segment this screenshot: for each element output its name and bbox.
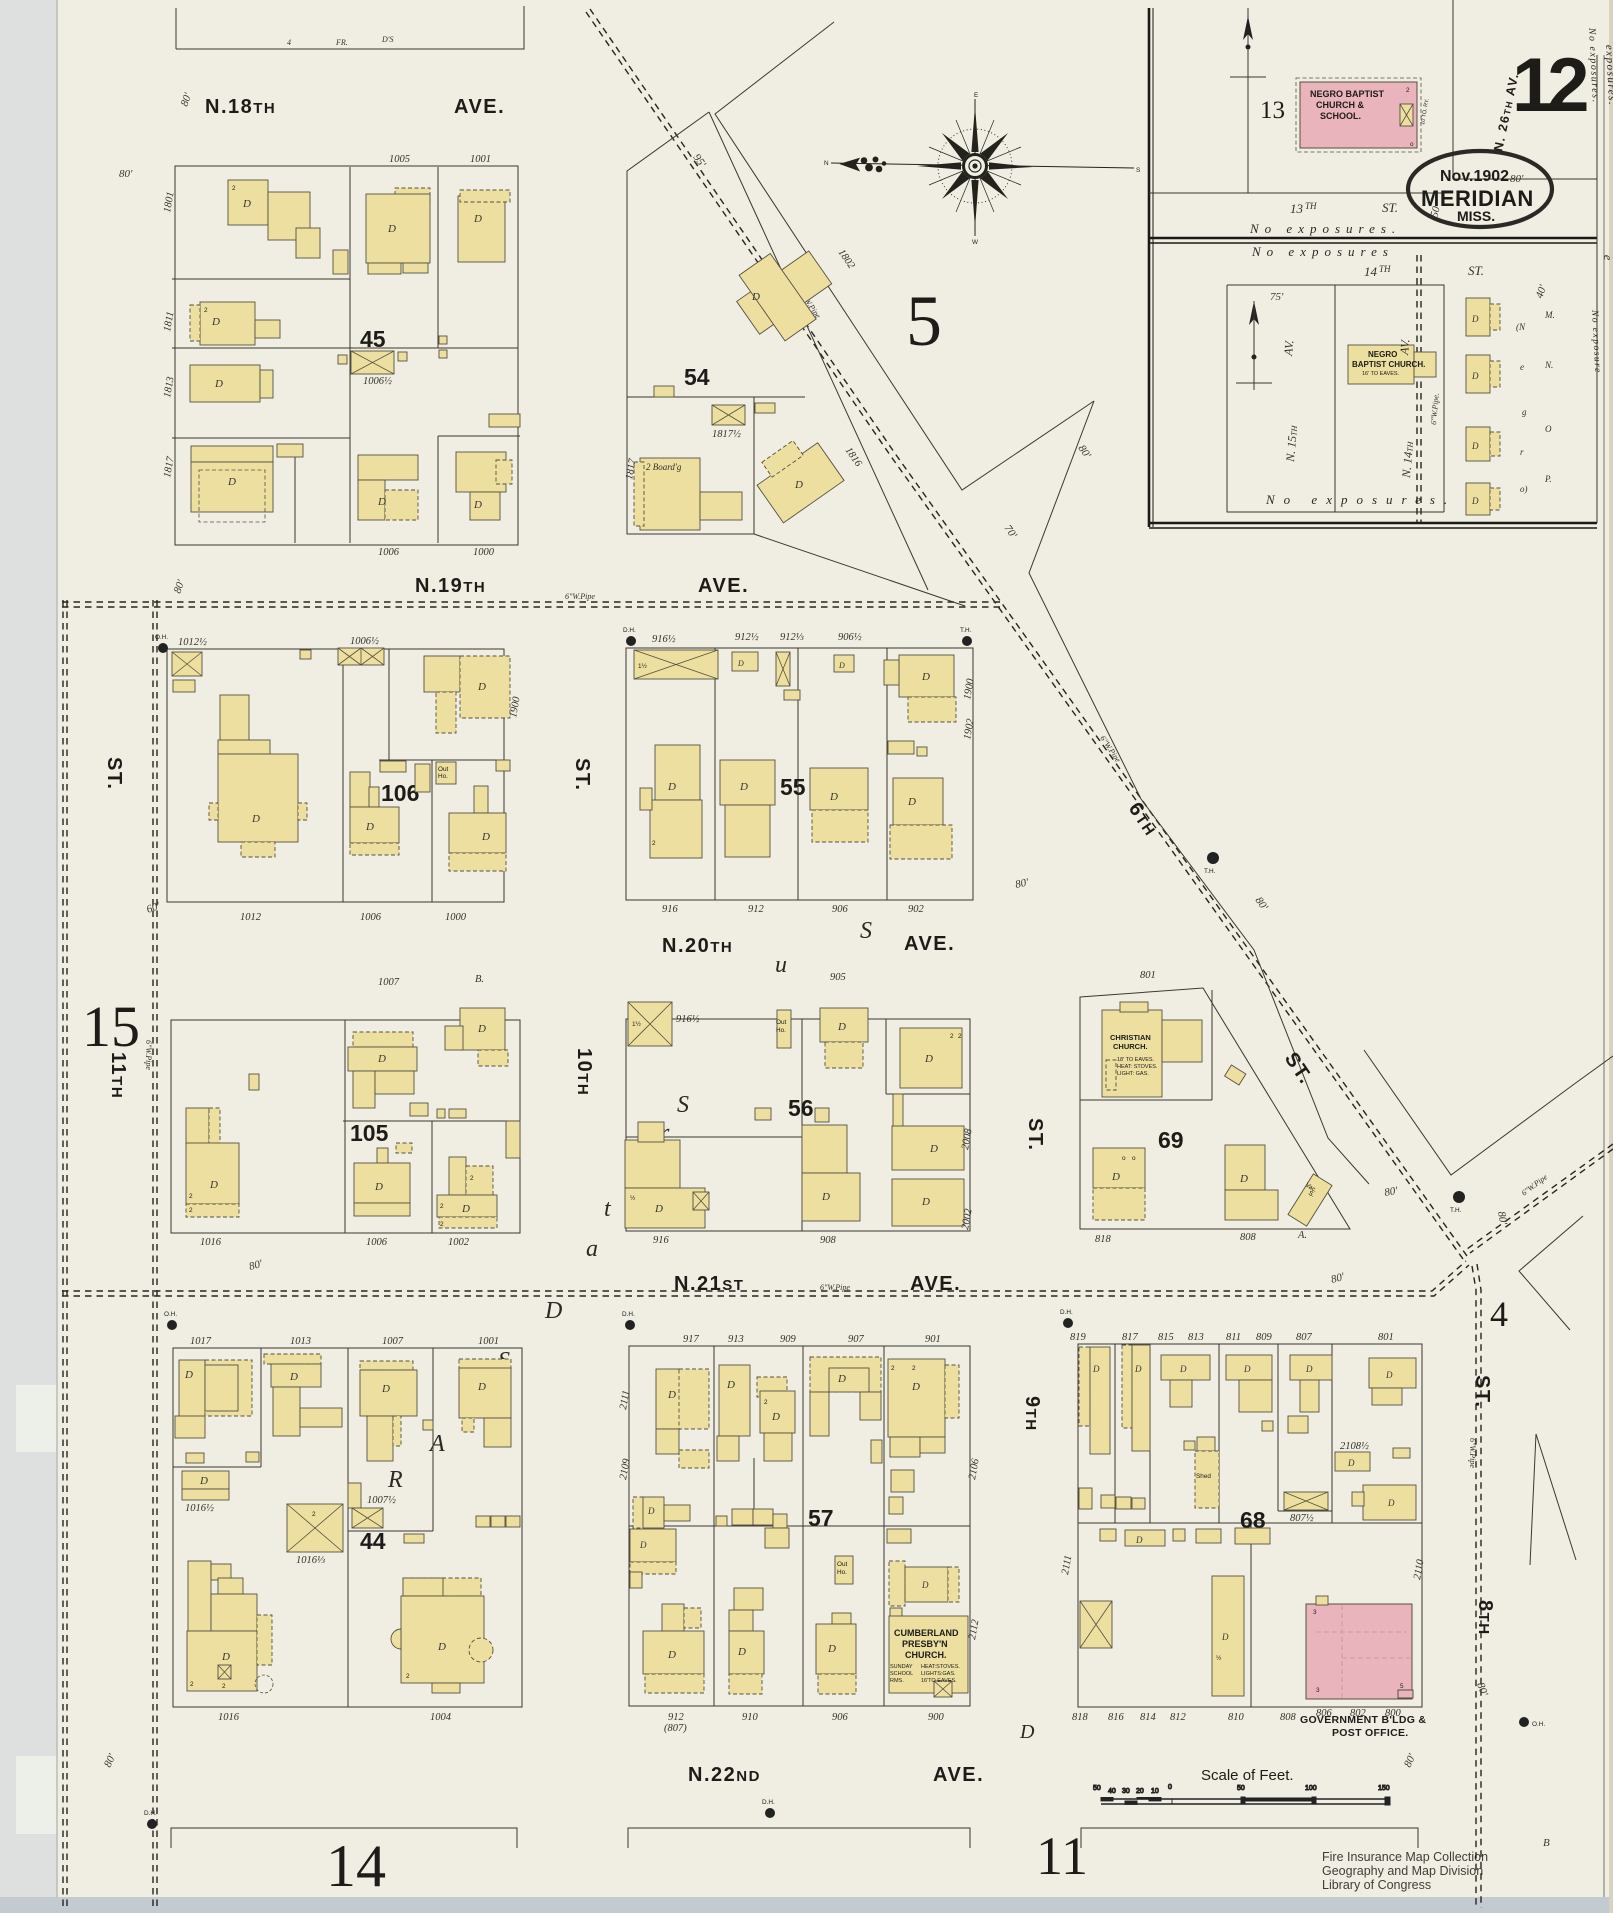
svg-text:BAPTIST CHURCH.: BAPTIST CHURCH. — [1352, 360, 1425, 369]
svg-text:1007: 1007 — [382, 1336, 404, 1347]
svg-text:POST OFFICE.: POST OFFICE. — [1332, 1727, 1409, 1739]
svg-text:D: D — [737, 659, 744, 668]
svg-text:105: 105 — [350, 1120, 389, 1146]
svg-text:D: D — [387, 223, 396, 235]
svg-text:2: 2 — [652, 840, 656, 847]
svg-text:D.H.: D.H. — [623, 627, 636, 634]
svg-text:a: a — [586, 1236, 598, 1262]
svg-text:N.18TH: N.18TH — [205, 96, 276, 118]
svg-text:9TH: 9TH — [1021, 1396, 1043, 1432]
svg-text:2: 2 — [891, 1365, 895, 1372]
svg-text:901: 901 — [925, 1334, 941, 1345]
svg-text:D: D — [1471, 441, 1479, 451]
svg-text:818: 818 — [1095, 1234, 1112, 1245]
svg-text:2: 2 — [440, 1203, 444, 1210]
svg-text:2: 2 — [190, 1681, 194, 1688]
svg-text:ST.: ST. — [1024, 1118, 1046, 1151]
svg-text:6"W.Pipe: 6"W.Pipe — [820, 1283, 850, 1292]
svg-text:D: D — [1239, 1173, 1248, 1185]
svg-text:2: 2 — [764, 1399, 768, 1406]
svg-text:902: 902 — [908, 904, 925, 915]
svg-text:1006: 1006 — [378, 547, 400, 558]
svg-text:11: 11 — [1036, 1826, 1088, 1886]
svg-text:917: 917 — [683, 1334, 700, 1345]
svg-text:D: D — [837, 1373, 846, 1385]
svg-text:D: D — [821, 1191, 830, 1203]
svg-text:No exposures: No exposures — [1251, 244, 1394, 259]
svg-text:906: 906 — [832, 1712, 849, 1723]
svg-text:1001: 1001 — [470, 154, 491, 165]
svg-text:CHURCH &: CHURCH & — [1316, 100, 1364, 110]
svg-text:D: D — [667, 1649, 676, 1661]
svg-text:811: 811 — [1226, 1332, 1241, 1343]
svg-text:2: 2 — [406, 1673, 410, 1680]
svg-text:807½: 807½ — [1290, 1513, 1314, 1524]
svg-text:D: D — [929, 1143, 938, 1155]
svg-text:900: 900 — [928, 1712, 945, 1723]
svg-text:e: e — [1520, 362, 1524, 372]
svg-text:1½: 1½ — [632, 1020, 642, 1028]
svg-text:ST.: ST. — [1471, 1375, 1493, 1408]
svg-text:D: D — [1134, 1364, 1142, 1374]
svg-text:16' TO EAVES.: 16' TO EAVES. — [1362, 371, 1400, 377]
svg-text:CUMBERLAND: CUMBERLAND — [894, 1628, 959, 1638]
svg-text:S: S — [1136, 167, 1140, 174]
svg-text:ST.: ST. — [103, 757, 125, 790]
svg-text:50: 50 — [1093, 1785, 1101, 1792]
svg-text:D: D — [289, 1371, 298, 1383]
svg-text:D: D — [1305, 1364, 1313, 1374]
svg-text:0: 0 — [1168, 1784, 1172, 1791]
svg-text:D: D — [921, 1196, 930, 1208]
svg-text:D: D — [377, 1053, 386, 1065]
svg-text:u: u — [775, 952, 787, 978]
svg-text:14: 14 — [326, 1833, 386, 1899]
svg-text:D: D — [921, 671, 930, 683]
svg-text:1016: 1016 — [218, 1712, 240, 1723]
svg-text:AVE.: AVE. — [698, 575, 749, 597]
svg-text:Out: Out — [438, 766, 449, 773]
svg-text:D: D — [473, 499, 482, 511]
svg-text:3: 3 — [1316, 1687, 1320, 1694]
svg-text:N.20TH: N.20TH — [662, 935, 733, 957]
svg-text:g: g — [1522, 407, 1527, 417]
svg-text:FR.: FR. — [335, 38, 348, 47]
svg-text:o: o — [1410, 141, 1414, 148]
svg-text:D: D — [214, 378, 223, 390]
svg-text:D.H.: D.H. — [622, 1311, 635, 1318]
svg-text:D: D — [1471, 371, 1479, 381]
svg-text:56: 56 — [788, 1095, 814, 1121]
svg-text:D: D — [211, 316, 220, 328]
svg-text:5: 5 — [906, 281, 942, 361]
svg-text:D: D — [726, 1379, 735, 1391]
svg-text:55: 55 — [780, 774, 806, 800]
svg-text:T.H.: T.H. — [1450, 1207, 1462, 1214]
svg-text:N: N — [824, 160, 829, 167]
svg-text:P.: P. — [1544, 474, 1552, 484]
svg-text:e: e — [1601, 254, 1613, 264]
svg-text:2: 2 — [312, 1511, 316, 1518]
svg-text:AVE.: AVE. — [910, 1273, 961, 1295]
svg-text:MISS.: MISS. — [1457, 208, 1495, 224]
svg-text:1001: 1001 — [478, 1336, 499, 1347]
svg-text:40: 40 — [1108, 1788, 1116, 1795]
svg-text:W: W — [972, 239, 979, 246]
svg-text:80': 80' — [1495, 1210, 1509, 1226]
svg-text:PRESBY'N: PRESBY'N — [902, 1639, 948, 1649]
svg-text:D: D — [838, 661, 845, 670]
svg-text:54: 54 — [684, 364, 710, 390]
svg-text:1012: 1012 — [240, 912, 262, 923]
svg-text:2: 2 — [958, 1033, 962, 1040]
svg-text:11TH: 11TH — [107, 1052, 129, 1099]
svg-text:100: 100 — [1305, 1785, 1317, 1792]
svg-text:80': 80' — [1383, 1185, 1399, 1199]
svg-text:D: D — [477, 681, 486, 693]
svg-text:1007½: 1007½ — [367, 1495, 396, 1506]
svg-text:80': 80' — [1510, 173, 1524, 185]
svg-text:801: 801 — [1140, 970, 1156, 981]
svg-text:810: 810 — [1228, 1712, 1245, 1723]
svg-text:D: D — [924, 1053, 933, 1065]
svg-text:D: D — [639, 1540, 647, 1550]
svg-text:D: D — [911, 1381, 920, 1393]
svg-text:½: ½ — [1216, 1654, 1222, 1662]
svg-text:14: 14 — [1364, 264, 1378, 279]
svg-text:D'S: D'S — [381, 35, 394, 44]
svg-text:D: D — [481, 831, 490, 843]
svg-text:D: D — [227, 476, 236, 488]
svg-text:6"W.Pipe: 6"W.Pipe — [144, 1040, 153, 1070]
svg-text:10TH: 10TH — [573, 1048, 595, 1096]
svg-text:912: 912 — [748, 904, 765, 915]
svg-text:75': 75' — [1270, 291, 1284, 303]
svg-text:D: D — [184, 1369, 193, 1381]
svg-text:CHURCH.: CHURCH. — [905, 1650, 947, 1660]
svg-text:1013: 1013 — [290, 1336, 311, 1347]
svg-text:1017: 1017 — [190, 1336, 212, 1347]
svg-text:812: 812 — [1170, 1712, 1187, 1723]
svg-text:N.22ND: N.22ND — [688, 1764, 761, 1786]
svg-text:Library of Congress: Library of Congress — [1322, 1878, 1431, 1892]
svg-text:2: 2 — [189, 1207, 193, 1214]
svg-text:D: D — [794, 479, 803, 491]
svg-text:807: 807 — [1296, 1332, 1313, 1343]
svg-text:D: D — [1387, 1498, 1395, 1508]
svg-text:D: D — [667, 781, 676, 793]
svg-text:912: 912 — [668, 1712, 685, 1723]
svg-text:1004: 1004 — [430, 1712, 452, 1723]
svg-text:D: D — [199, 1475, 208, 1487]
svg-text:D: D — [242, 198, 251, 210]
svg-text:D: D — [221, 1651, 230, 1663]
svg-text:N.: N. — [1544, 360, 1553, 370]
svg-text:M.: M. — [1544, 310, 1555, 320]
svg-text:50: 50 — [1237, 1785, 1245, 1792]
svg-text:1016: 1016 — [200, 1237, 222, 1248]
svg-text:800: 800 — [1385, 1708, 1402, 1719]
svg-text:907: 907 — [848, 1334, 865, 1345]
svg-text:908: 908 — [820, 1235, 837, 1246]
svg-text:906: 906 — [832, 904, 849, 915]
svg-text:D.H.: D.H. — [762, 1799, 775, 1806]
svg-text:O.H.: O.H. — [1532, 1721, 1545, 1728]
svg-text:1016½: 1016½ — [185, 1503, 214, 1514]
svg-text:2: 2 — [232, 185, 236, 192]
svg-text:814: 814 — [1140, 1712, 1157, 1723]
svg-text:916½: 916½ — [676, 1014, 700, 1025]
svg-text:Scale of Feet.: Scale of Feet. — [1201, 1767, 1294, 1784]
svg-text:906½: 906½ — [838, 632, 862, 643]
svg-text:57: 57 — [808, 1505, 834, 1531]
svg-text:815: 815 — [1158, 1332, 1174, 1343]
svg-text:D: D — [739, 781, 748, 793]
svg-text:N.19TH: N.19TH — [415, 575, 486, 597]
svg-text:913: 913 — [728, 1334, 744, 1345]
svg-text:3: 3 — [1313, 1609, 1317, 1616]
svg-text:13: 13 — [1290, 201, 1304, 216]
svg-text:CHURCH.: CHURCH. — [1113, 1042, 1148, 1051]
svg-text:808: 808 — [1240, 1232, 1257, 1243]
svg-text:D: D — [1221, 1632, 1229, 1642]
svg-text:1012½: 1012½ — [178, 637, 207, 648]
svg-text:16'TO EAVES.: 16'TO EAVES. — [921, 1678, 957, 1684]
svg-text:o): o) — [1520, 484, 1528, 494]
svg-text:1007: 1007 — [378, 977, 400, 988]
svg-text:2: 2 — [950, 1033, 954, 1040]
svg-text:D: D — [209, 1179, 218, 1191]
svg-text:13: 13 — [1260, 97, 1285, 124]
svg-text:6"W.Pipe: 6"W.Pipe — [565, 592, 595, 601]
svg-text:CHRISTIAN: CHRISTIAN — [1110, 1033, 1151, 1042]
svg-text:802: 802 — [1350, 1708, 1367, 1719]
svg-text:ST.: ST. — [1468, 263, 1484, 278]
svg-text:S: S — [860, 918, 872, 944]
svg-text:12: 12 — [1512, 43, 1587, 128]
svg-text:6"W.Pipe: 6"W.Pipe — [1468, 1438, 1477, 1468]
svg-text:2: 2 — [1406, 87, 1410, 94]
svg-text:2: 2 — [222, 1683, 226, 1690]
svg-text:806: 806 — [1316, 1708, 1333, 1719]
svg-text:D: D — [1471, 496, 1479, 506]
svg-text:No exposures.: No exposures. — [1249, 221, 1401, 236]
svg-text:819: 819 — [1070, 1332, 1087, 1343]
svg-text:Ho.: Ho. — [837, 1569, 847, 1576]
svg-text:E: E — [974, 92, 978, 99]
svg-text:D: D — [1135, 1535, 1143, 1545]
svg-text:1006½: 1006½ — [350, 636, 379, 647]
svg-text:D: D — [251, 813, 260, 825]
svg-text:SUNDAY: SUNDAY — [890, 1664, 913, 1670]
svg-text:D: D — [921, 1580, 929, 1590]
svg-text:2: 2 — [912, 1365, 916, 1372]
svg-text:D: D — [771, 1411, 780, 1423]
svg-text:B: B — [1543, 1837, 1550, 1849]
svg-text:ST.: ST. — [571, 758, 593, 791]
svg-text:1016⅓: 1016⅓ — [296, 1555, 325, 1566]
svg-text:1817½: 1817½ — [712, 429, 741, 440]
svg-text:O: O — [1545, 424, 1552, 434]
svg-text:NEGRO: NEGRO — [1368, 350, 1397, 359]
svg-text:TH: TH — [1305, 201, 1317, 211]
svg-text:D: D — [461, 1203, 470, 1215]
svg-text:45: 45 — [360, 326, 386, 352]
svg-text:SCHOOL: SCHOOL — [890, 1671, 913, 1677]
svg-text:916: 916 — [662, 904, 679, 915]
svg-text:Ho.: Ho. — [776, 1027, 786, 1034]
svg-text:D: D — [1243, 1364, 1251, 1374]
svg-text:Nov.1902: Nov.1902 — [1440, 168, 1509, 185]
svg-text:AVE.: AVE. — [933, 1764, 984, 1786]
svg-text:D: D — [1471, 314, 1479, 324]
svg-text:LIGHT: GAS.: LIGHT: GAS. — [1117, 1071, 1149, 1077]
svg-text:Shed: Shed — [1196, 1473, 1211, 1480]
svg-text:813: 813 — [1188, 1332, 1204, 1343]
svg-text:D: D — [1111, 1171, 1120, 1183]
svg-text:B.: B. — [475, 974, 484, 985]
svg-text:2 Board'g: 2 Board'g — [646, 462, 682, 472]
svg-text:912½: 912½ — [735, 632, 759, 643]
svg-text:D: D — [647, 1506, 655, 1516]
svg-text:S: S — [677, 1092, 689, 1118]
svg-text:o: o — [1132, 1155, 1136, 1162]
svg-text:TH: TH — [1379, 264, 1391, 274]
svg-text:15: 15 — [82, 994, 140, 1059]
svg-text:1000: 1000 — [445, 912, 467, 923]
svg-text:D.H.: D.H. — [1060, 1309, 1073, 1316]
svg-text:D: D — [365, 821, 374, 833]
svg-text:2: 2 — [440, 1221, 444, 1228]
svg-text:AV.: AV. — [1397, 338, 1412, 356]
svg-text:1006½: 1006½ — [363, 376, 392, 387]
svg-text:808: 808 — [1280, 1712, 1297, 1723]
svg-text:905: 905 — [830, 972, 846, 983]
svg-text:D: D — [477, 1381, 486, 1393]
svg-text:D: D — [654, 1203, 663, 1215]
svg-text:(N: (N — [1516, 322, 1526, 332]
svg-text:R: R — [387, 1467, 403, 1493]
svg-text:30: 30 — [1122, 1788, 1130, 1795]
svg-text:D: D — [827, 1643, 836, 1655]
svg-text:106: 106 — [381, 780, 419, 806]
svg-text:816: 816 — [1108, 1712, 1125, 1723]
svg-text:HEAT: STOVES.: HEAT: STOVES. — [1117, 1064, 1158, 1070]
svg-text:909: 909 — [780, 1334, 797, 1345]
svg-text:Fire Insurance Map Collection: Fire Insurance Map Collection — [1322, 1850, 1488, 1864]
svg-text:818: 818 — [1072, 1712, 1089, 1723]
svg-text:T.H.: T.H. — [960, 627, 972, 634]
svg-text:69: 69 — [1158, 1127, 1184, 1153]
svg-text:D.H.: D.H. — [144, 1810, 157, 1817]
svg-text:D: D — [829, 791, 838, 803]
svg-text:Geography and Map Division: Geography and Map Division — [1322, 1864, 1483, 1878]
svg-text:1½: 1½ — [638, 662, 648, 670]
svg-text:r: r — [1520, 447, 1524, 457]
svg-text:10: 10 — [1151, 1788, 1159, 1795]
svg-text:2: 2 — [470, 1175, 474, 1182]
svg-text:D: D — [1092, 1364, 1100, 1374]
svg-text:(807): (807) — [664, 1723, 687, 1734]
svg-text:D: D — [1179, 1364, 1187, 1374]
svg-text:AVE.: AVE. — [904, 933, 955, 955]
svg-text:D: D — [737, 1646, 746, 1658]
svg-text:A: A — [428, 1431, 445, 1457]
svg-text:809: 809 — [1256, 1332, 1273, 1343]
svg-text:D: D — [477, 1023, 486, 1035]
svg-text:D: D — [374, 1181, 383, 1193]
svg-text:D: D — [1019, 1721, 1035, 1743]
svg-text:1006: 1006 — [360, 912, 382, 923]
svg-text:T.H.: T.H. — [1204, 868, 1216, 875]
svg-text:No exposures.: No exposures. — [1265, 492, 1456, 507]
svg-text:HEAT:STOVES.: HEAT:STOVES. — [921, 1664, 960, 1670]
svg-text:O.H.: O.H. — [155, 634, 168, 641]
svg-text:2: 2 — [189, 1193, 193, 1200]
svg-text:LIGHTS:GAS.: LIGHTS:GAS. — [921, 1671, 956, 1677]
svg-text:2108½: 2108½ — [1340, 1441, 1369, 1452]
svg-text:18' TO EAVES.: 18' TO EAVES. — [1117, 1057, 1155, 1063]
svg-text:916: 916 — [653, 1235, 670, 1246]
svg-text:150: 150 — [1378, 1785, 1390, 1792]
svg-text:RMS.: RMS. — [890, 1678, 904, 1684]
svg-text:½: ½ — [630, 1194, 636, 1202]
svg-text:4: 4 — [1490, 1294, 1508, 1334]
svg-text:NEGRO BAPTIST: NEGRO BAPTIST — [1310, 89, 1385, 99]
svg-text:817: 817 — [1122, 1332, 1139, 1343]
svg-text:D: D — [1385, 1370, 1393, 1380]
svg-text:1006: 1006 — [366, 1237, 388, 1248]
svg-text:D: D — [837, 1021, 846, 1033]
svg-text:N.21ST: N.21ST — [674, 1273, 744, 1295]
svg-text:8TH: 8TH — [1474, 1600, 1496, 1636]
svg-text:2: 2 — [204, 307, 208, 314]
svg-text:910: 910 — [742, 1712, 759, 1723]
svg-text:D: D — [1347, 1458, 1355, 1468]
svg-text:1002: 1002 — [448, 1237, 470, 1248]
svg-text:SCHOOL.: SCHOOL. — [1320, 111, 1361, 121]
svg-text:o: o — [1122, 1155, 1126, 1162]
svg-text:Out: Out — [776, 1019, 787, 1026]
svg-text:80': 80' — [119, 168, 133, 180]
svg-text:801: 801 — [1378, 1332, 1394, 1343]
svg-text:20: 20 — [1136, 1788, 1144, 1795]
svg-text:D: D — [751, 291, 760, 303]
svg-text:Out: Out — [837, 1561, 848, 1568]
svg-text:44: 44 — [360, 1528, 386, 1554]
svg-text:D: D — [667, 1389, 676, 1401]
svg-text:D: D — [473, 213, 482, 225]
svg-text:D: D — [907, 796, 916, 808]
svg-text:A.: A. — [1297, 1230, 1307, 1241]
svg-text:ST.: ST. — [1382, 200, 1398, 215]
svg-text:5: 5 — [1400, 1683, 1404, 1690]
svg-text:912⅓: 912⅓ — [780, 632, 804, 643]
svg-text:O.H.: O.H. — [164, 1311, 177, 1318]
svg-text:1000: 1000 — [473, 547, 495, 558]
svg-text:916½: 916½ — [652, 634, 676, 645]
svg-text:Ho.: Ho. — [438, 773, 448, 780]
svg-text:D: D — [544, 1298, 562, 1324]
svg-text:1005: 1005 — [389, 154, 410, 165]
svg-text:D: D — [437, 1641, 446, 1653]
svg-text:4: 4 — [287, 38, 291, 47]
svg-text:AV.: AV. — [1281, 339, 1296, 357]
svg-text:D: D — [377, 496, 386, 508]
svg-text:AVE.: AVE. — [454, 96, 505, 118]
svg-text:D: D — [381, 1383, 390, 1395]
